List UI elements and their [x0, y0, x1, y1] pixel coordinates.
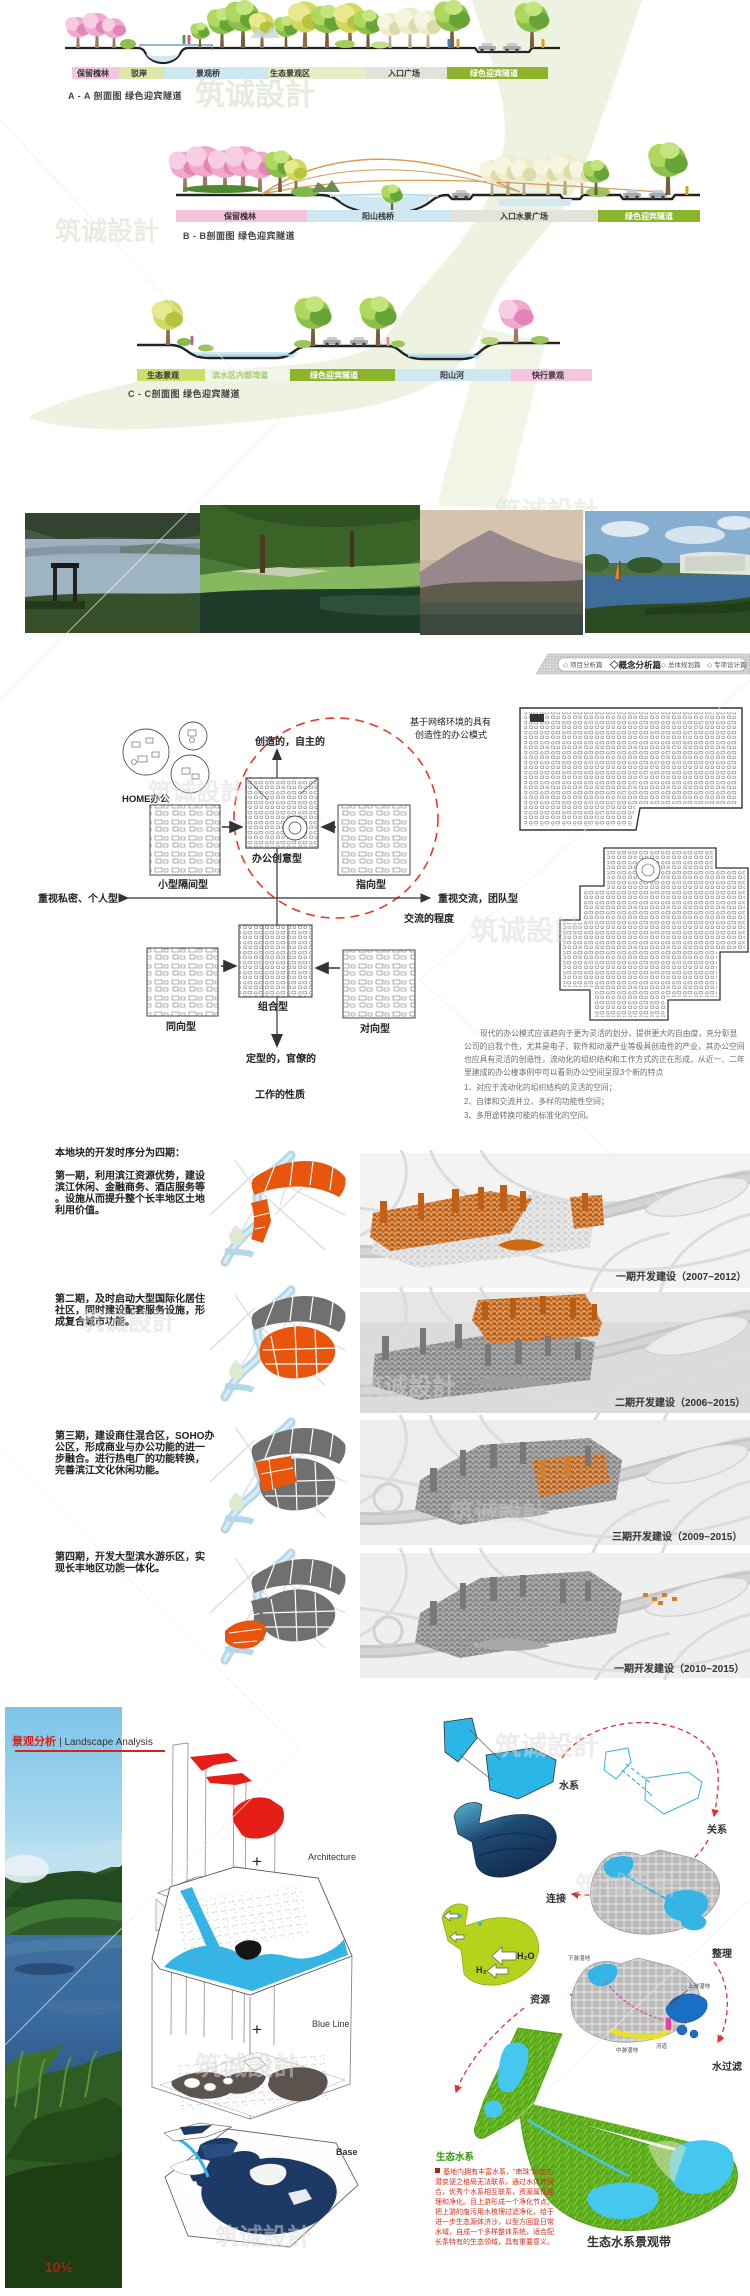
svg-text:连接: 连接 [546, 1892, 566, 1905]
svg-text:把上游的废污用水梳理过滤净化，给于: 把上游的废污用水梳理过滤净化，给于 [435, 2207, 554, 2216]
svg-text:快行景观: 快行景观 [532, 370, 564, 380]
svg-text:一期开发建设（2010~2015）: 一期开发建设（2010~2015） [614, 1662, 744, 1675]
svg-text:生态景观: 生态景观 [147, 370, 179, 380]
svg-text:生态水系景观带: 生态水系景观带 [587, 2234, 671, 2249]
svg-text:生态景观区: 生态景观区 [270, 68, 310, 78]
svg-text:上游湿地: 上游湿地 [688, 1982, 711, 1990]
svg-text:保留槐林: 保留槐林 [223, 211, 256, 221]
svg-text:3、多用途转换可能的标准化的空间。: 3、多用途转换可能的标准化的空间。 [464, 1110, 593, 1120]
svg-text:绿色迎宾隧道: 绿色迎宾隧道 [625, 211, 673, 221]
svg-text:潜变便之格局无法联系，通过水体转换: 潜变便之格局无法联系，通过水体转换 [435, 2177, 554, 2186]
svg-text:三期开发建设（2009~2015）: 三期开发建设（2009~2015） [612, 1530, 742, 1543]
svg-text:阳山河: 阳山河 [440, 370, 464, 380]
svg-text:同向型: 同向型 [166, 1020, 196, 1033]
svg-text:组合型: 组合型 [258, 1000, 288, 1013]
svg-text:项目分析篇: 项目分析篇 [570, 660, 603, 669]
svg-text:重视私密、个人型: 重视私密、个人型 [38, 892, 118, 905]
svg-text:+: + [252, 2020, 262, 2039]
svg-text:基于网络环境的具有: 基于网络环境的具有 [410, 716, 491, 727]
svg-text:中游湿地: 中游湿地 [616, 2046, 639, 2054]
svg-text:进一步生态源体济沙，以型方回复日常: 进一步生态源体济沙，以型方回复日常 [435, 2217, 554, 2226]
svg-text:第二期，及时启动大型国际化居住: 第二期，及时启动大型国际化居住 [55, 1292, 205, 1305]
svg-text:长条特有的生态领域，具有重要意义。: 长条特有的生态领域，具有重要意义。 [435, 2237, 554, 2246]
svg-text:阳山栈桥: 阳山栈桥 [362, 211, 395, 221]
svg-text:理和净化。且上游形成一个净化节点。: 理和净化。且上游形成一个净化节点。 [435, 2197, 554, 2206]
svg-text:步融合。进行热电厂的功能转换，: 步融合。进行热电厂的功能转换， [55, 1452, 205, 1465]
svg-text:保留槐林: 保留槐林 [76, 68, 109, 78]
svg-text:水系: 水系 [558, 1779, 579, 1792]
svg-text:公司的自我个性，尤其是电子、软件和动漫产业等极具创造性的产业: 公司的自我个性，尤其是电子、软件和动漫产业等极具创造性的产业，其办公空间 [464, 1041, 745, 1051]
svg-text:小型隔间型: 小型隔间型 [157, 878, 208, 891]
svg-text:利用价值。: 利用价值。 [55, 1204, 105, 1217]
svg-text:总体规划篇: 总体规划篇 [668, 660, 701, 669]
svg-text:二期开发建设（2006~2015）: 二期开发建设（2006~2015） [615, 1396, 745, 1409]
svg-text:Base: Base [336, 2147, 358, 2157]
svg-text:水域，自成一个多样整体系统，适合配: 水域，自成一个多样整体系统，适合配 [435, 2227, 554, 2236]
svg-text:本地块的开发时序分为四期：: 本地块的开发时序分为四期： [55, 1146, 185, 1159]
svg-text:第三期，建设商住混合区，SOHO办: 第三期，建设商住混合区，SOHO办 [55, 1429, 214, 1442]
svg-text:河道: 河道 [656, 2042, 668, 2050]
svg-text:资源: 资源 [530, 1993, 550, 2006]
svg-text:2、自律和交流并立、多样的功能性空间；: 2、自律和交流并立、多样的功能性空间； [464, 1096, 609, 1106]
svg-text:现代的办公模式应该趋向于更为灵活的划分，提供更大的自由度，充: 现代的办公模式应该趋向于更为灵活的划分，提供更大的自由度，充分彰显 [480, 1028, 737, 1038]
svg-text:第一期，利用滨江资源优势，建设: 第一期，利用滨江资源优势，建设 [55, 1169, 205, 1182]
svg-text:里建成的办公楼事例中可以看到办公空间呈现3个新的特点: 里建成的办公楼事例中可以看到办公空间呈现3个新的特点 [464, 1067, 663, 1077]
svg-text:滨水区内部湾道: 滨水区内部湾道 [212, 370, 268, 380]
svg-text:下游湿地: 下游湿地 [568, 1954, 591, 1962]
svg-text:生态水系: 生态水系 [436, 2151, 475, 2163]
svg-text:现长丰地区功能一体化。: 现长丰地区功能一体化。 [55, 1562, 165, 1575]
svg-text:社区，同时建设配套服务设施，形: 社区，同时建设配套服务设施，形 [54, 1304, 205, 1317]
svg-text:定型的，官僚的: 定型的，官僚的 [246, 1052, 316, 1065]
svg-text:合，优秀个水系相互联系，资源属性整: 合，优秀个水系相互联系，资源属性整 [435, 2187, 554, 2196]
svg-text:H₂O: H₂O [517, 1951, 535, 1961]
svg-text:绿色迎宾隧道: 绿色迎宾隧道 [310, 370, 358, 380]
svg-text:创造的，自主的: 创造的，自主的 [254, 735, 325, 748]
svg-text:一期开发建设（2007~2012）: 一期开发建设（2007~2012） [616, 1270, 746, 1283]
svg-text:对向型: 对向型 [360, 1022, 390, 1035]
svg-text:公区，形成商业与办公功能的进一: 公区，形成商业与办公功能的进一 [55, 1441, 205, 1454]
svg-text:绿色迎宾隧道: 绿色迎宾隧道 [470, 68, 518, 78]
svg-text:水过滤: 水过滤 [711, 2060, 742, 2073]
svg-text:交流的程度: 交流的程度 [404, 912, 455, 925]
svg-text:Blue Line: Blue Line [312, 2019, 350, 2029]
svg-text:成复合城市功能。: 成复合城市功能。 [55, 1315, 135, 1328]
svg-text:1、对应于流动化的组织结构的灵活的空间；: 1、对应于流动化的组织结构的灵活的空间； [464, 1082, 616, 1092]
svg-text:A - A 剖面图 绿色迎宾隧道: A - A 剖面图 绿色迎宾隧道 [68, 90, 182, 101]
svg-text:整理: 整理 [711, 1947, 732, 1960]
svg-text:◇概念分析篇: ◇概念分析篇 [609, 660, 662, 670]
svg-text:也应具有灵活的创造性，流动化的组织结构和工作方式的正在形成，: 也应具有灵活的创造性，流动化的组织结构和工作方式的正在形成，从近一、二年 [464, 1054, 745, 1064]
svg-text:B - B剖面图 绿色迎宾隧道: B - B剖面图 绿色迎宾隧道 [183, 230, 295, 241]
svg-text:驳岸: 驳岸 [131, 68, 147, 78]
svg-text:入口广场: 入口广场 [387, 68, 420, 78]
svg-text:+: + [252, 1852, 262, 1871]
svg-text:完善滨江文化休闲功能。: 完善滨江文化休闲功能。 [55, 1464, 165, 1477]
svg-text:关系: 关系 [707, 1823, 727, 1836]
svg-text:景观桥: 景观桥 [196, 68, 221, 78]
svg-text:重视交流，团队型: 重视交流，团队型 [438, 892, 518, 905]
svg-text:专项设计篇: 专项设计篇 [714, 660, 747, 669]
svg-text:指向型: 指向型 [356, 878, 386, 891]
svg-text:滨江休闲、金融商务、酒店服务等: 滨江休闲、金融商务、酒店服务等 [55, 1181, 205, 1194]
svg-text:C - C剖面图 绿色迎宾隧道: C - C剖面图 绿色迎宾隧道 [128, 388, 240, 399]
svg-text:H₂: H₂ [476, 1965, 487, 1975]
svg-text:创造性的办公模式: 创造性的办公模式 [415, 729, 487, 740]
svg-text:。设施从而提升整个长丰地区土地: 。设施从而提升整个长丰地区土地 [55, 1192, 205, 1205]
svg-text:HOME办公: HOME办公 [122, 793, 170, 805]
svg-text:工作的性质: 工作的性质 [255, 1088, 305, 1101]
svg-text:10½: 10½ [45, 2259, 73, 2275]
svg-text:第四期，开发大型滨水游乐区，实: 第四期，开发大型滨水游乐区，实 [55, 1550, 205, 1563]
svg-text:基地内拥有丰富水系，"串珠"的其生: 基地内拥有丰富水系，"串珠"的其生 [443, 2167, 553, 2176]
svg-text:入口水景广场: 入口水景广场 [499, 211, 548, 221]
svg-text:Architecture: Architecture [308, 1852, 356, 1862]
svg-text:办公创意型: 办公创意型 [252, 852, 302, 865]
